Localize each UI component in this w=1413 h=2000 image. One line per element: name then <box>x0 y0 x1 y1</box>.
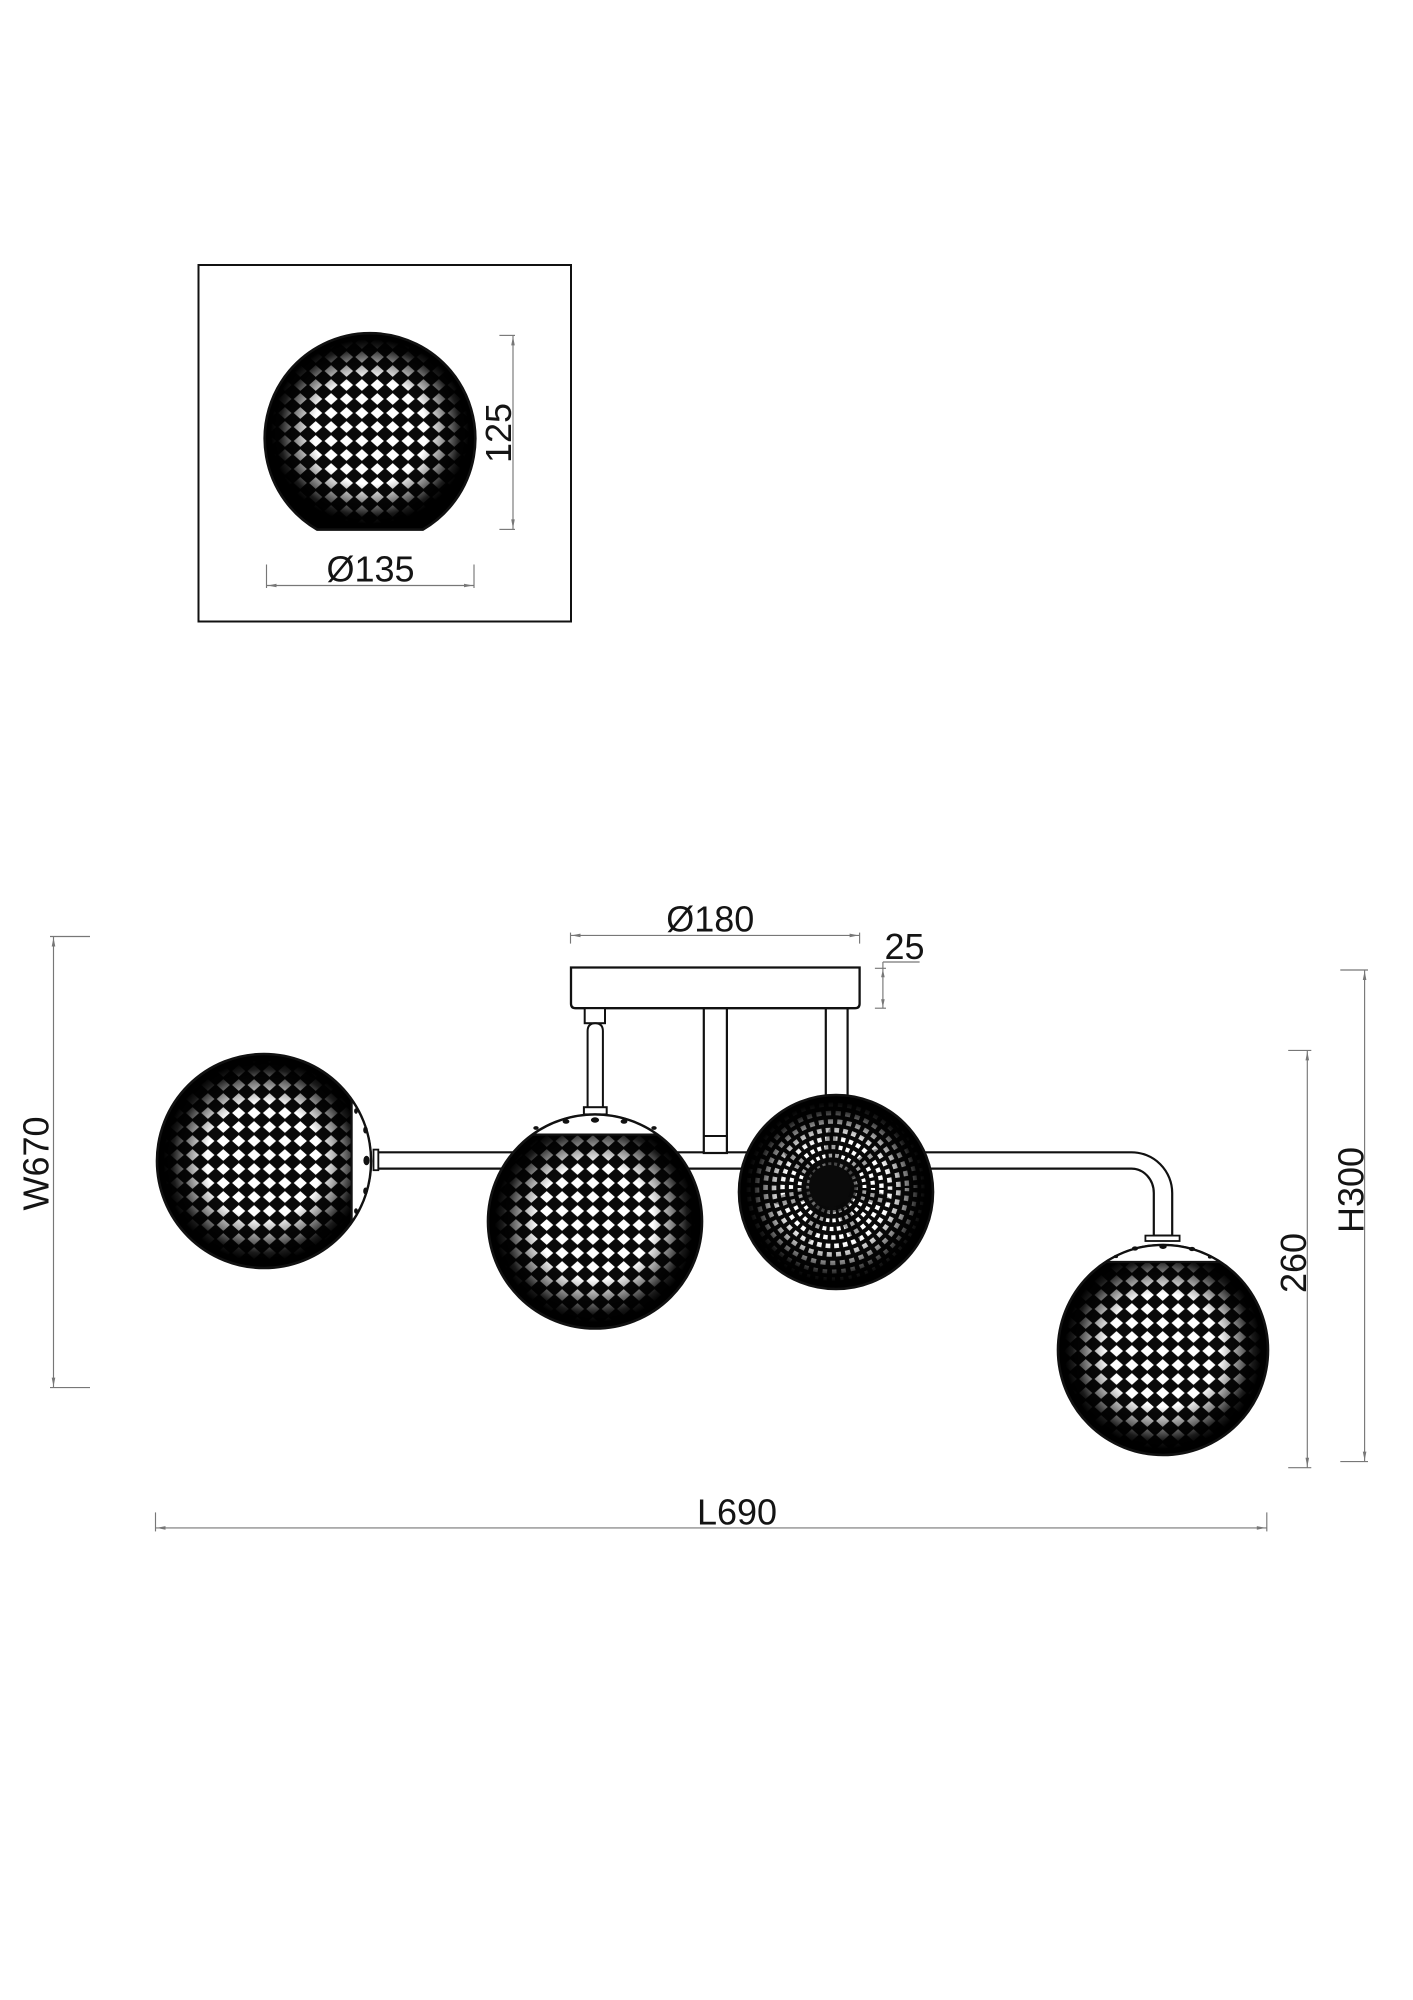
svg-text:L690: L690 <box>697 1491 777 1532</box>
svg-text:H300: H300 <box>1331 1147 1372 1233</box>
svg-text:125: 125 <box>478 403 519 463</box>
svg-text:25: 25 <box>885 926 925 967</box>
svg-text:260: 260 <box>1273 1233 1314 1293</box>
svg-text:Ø180: Ø180 <box>666 898 754 939</box>
svg-text:Ø135: Ø135 <box>326 549 414 590</box>
svg-text:W670: W670 <box>16 1116 57 1210</box>
